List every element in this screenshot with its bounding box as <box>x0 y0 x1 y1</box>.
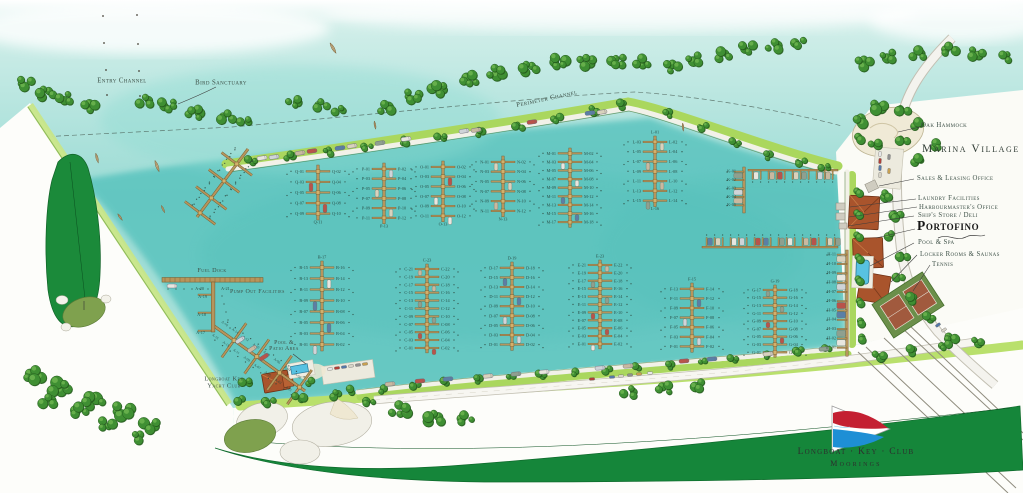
svg-text:D-12: D-12 <box>526 294 535 299</box>
svg-text:M-08: M-08 <box>584 177 594 182</box>
svg-text:M-05: M-05 <box>546 168 556 173</box>
svg-text:O-02: O-02 <box>457 164 466 169</box>
svg-text:C-18: C-18 <box>441 282 450 287</box>
svg-text:O-13: O-13 <box>439 221 448 226</box>
marina-village-label: Marina Village <box>922 144 1020 156</box>
svg-text:D-18: D-18 <box>526 265 535 270</box>
svg-text:P-08: P-08 <box>398 196 406 201</box>
pool-patio-line2: Patio Area <box>269 346 299 352</box>
svg-text:B-09: B-09 <box>299 298 308 303</box>
svg-text:F-07: F-07 <box>670 315 679 320</box>
svg-text:L-08: L-08 <box>669 169 677 174</box>
svg-text:C-05: C-05 <box>404 330 413 335</box>
svg-text:Q-10: Q-10 <box>332 211 341 216</box>
svg-text:D-09: D-09 <box>489 304 498 309</box>
svg-text:A-19: A-19 <box>198 294 207 299</box>
svg-text:D-13: D-13 <box>489 285 498 290</box>
svg-text:B-03: B-03 <box>299 331 308 336</box>
svg-text:N-12: N-12 <box>517 208 526 213</box>
laundry-facilities-label: Laundry Facilities <box>918 195 980 202</box>
club-logo-line1: Longboat · Key · Club <box>798 448 915 458</box>
svg-text:D-06: D-06 <box>526 323 536 328</box>
svg-text:E-05: E-05 <box>578 326 586 331</box>
svg-text:B-01: B-01 <box>299 342 308 347</box>
dock-M: M-01M-02M-03M-04M-05M-06M-07M-08M-09M-10… <box>546 148 594 227</box>
svg-text:N-04: N-04 <box>517 169 527 174</box>
svg-text:G-01: G-01 <box>752 350 761 355</box>
svg-text:G-10: G-10 <box>789 319 798 324</box>
svg-text:L-02: L-02 <box>669 139 677 144</box>
svg-text:A-21: A-21 <box>221 286 230 291</box>
svg-text:D-05: D-05 <box>489 323 498 328</box>
svg-text:Q-11: Q-11 <box>314 220 323 225</box>
svg-text:B-12: B-12 <box>336 287 345 292</box>
svg-text:E-01: E-01 <box>578 341 586 346</box>
svg-text:H-04: H-04 <box>827 317 837 322</box>
svg-text:A-18: A-18 <box>197 312 206 317</box>
svg-text:F-05: F-05 <box>670 325 678 330</box>
svg-text:K-03: K-03 <box>727 185 736 190</box>
svg-text:Q-09: Q-09 <box>295 211 304 216</box>
svg-text:C-01: C-01 <box>404 345 413 350</box>
svg-text:F-06: F-06 <box>706 325 715 330</box>
yacht-club-line2: Yacht Club <box>204 383 243 390</box>
svg-text:G-11: G-11 <box>752 311 761 316</box>
svg-text:E-07: E-07 <box>578 318 587 323</box>
svg-text:O-04: O-04 <box>457 174 467 179</box>
svg-text:D-14: D-14 <box>526 285 536 290</box>
svg-text:C-16: C-16 <box>441 290 450 295</box>
svg-text:D-01: D-01 <box>489 342 498 347</box>
svg-text:H-10: H-10 <box>827 261 836 266</box>
marina-site-plan: Q-01Q-02Q-03Q-04Q-05Q-06Q-07Q-08Q-09Q-10… <box>0 0 1023 493</box>
svg-text:O-12: O-12 <box>457 213 466 218</box>
svg-text:Q-05: Q-05 <box>295 190 304 195</box>
svg-text:L-09: L-09 <box>633 169 641 174</box>
svg-text:Q-08: Q-08 <box>332 201 341 206</box>
svg-text:M-09: M-09 <box>546 185 556 190</box>
svg-text:G-06: G-06 <box>789 334 799 339</box>
svg-text:F-15: F-15 <box>688 277 696 282</box>
svg-text:D-17: D-17 <box>489 265 499 270</box>
svg-text:Q-07: Q-07 <box>295 201 305 206</box>
svg-text:G-04: G-04 <box>789 342 799 347</box>
pool-patio-area-label: Pool & Patio Area <box>269 340 299 352</box>
svg-text:D-11: D-11 <box>489 294 498 299</box>
svg-text:D-07: D-07 <box>489 313 499 318</box>
svg-text:D-19: D-19 <box>508 256 517 261</box>
svg-text:O-10: O-10 <box>457 204 466 209</box>
svg-text:K-01: K-01 <box>727 169 736 174</box>
svg-text:N-02: N-02 <box>517 159 526 164</box>
svg-text:P-02: P-02 <box>398 166 406 171</box>
svg-text:G-15: G-15 <box>752 295 761 300</box>
svg-text:Q-03: Q-03 <box>295 179 304 184</box>
svg-text:L-16: L-16 <box>651 206 660 211</box>
svg-text:F-10: F-10 <box>706 306 714 311</box>
svg-text:A-17: A-17 <box>196 330 206 335</box>
svg-text:M-16: M-16 <box>584 211 594 216</box>
svg-text:F-03: F-03 <box>670 334 678 339</box>
bird-sanctuary-label: Bird Sanctuary <box>195 79 247 86</box>
svg-text:K-02: K-02 <box>727 177 736 182</box>
svg-text:N-01: N-01 <box>480 159 489 164</box>
svg-text:D-04: D-04 <box>526 333 536 338</box>
svg-text:N-11: N-11 <box>480 208 489 213</box>
svg-text:G-13: G-13 <box>752 303 761 308</box>
svg-text:G-09: G-09 <box>752 319 761 324</box>
svg-text:N-05: N-05 <box>480 179 489 184</box>
svg-text:B-17: B-17 <box>318 255 327 260</box>
svg-text:F-01: F-01 <box>670 344 678 349</box>
svg-text:P-10: P-10 <box>398 206 406 211</box>
svg-text:B-02: B-02 <box>336 342 345 347</box>
svg-text:M-04: M-04 <box>584 159 594 164</box>
svg-text:B-04: B-04 <box>336 331 345 336</box>
tennis-label: Tennis <box>932 261 953 268</box>
svg-text:E-09: E-09 <box>578 310 586 315</box>
svg-text:C-21: C-21 <box>404 266 413 271</box>
svg-text:N-10: N-10 <box>517 199 526 204</box>
svg-text:E-22: E-22 <box>614 262 622 267</box>
village-building-1 <box>848 195 880 230</box>
svg-text:F-13: F-13 <box>670 286 678 291</box>
svg-text:B-14: B-14 <box>336 276 345 281</box>
svg-text:L-13: L-13 <box>633 188 641 193</box>
svg-text:G-12: G-12 <box>789 311 798 316</box>
dock-L: L-01L-03L-02L-05L-04L-07L-06L-09L-08L-11… <box>633 130 679 212</box>
svg-text:E-10: E-10 <box>614 310 622 315</box>
svg-text:E-13: E-13 <box>578 294 586 299</box>
svg-text:H-06: H-06 <box>827 298 837 303</box>
svg-text:M-07: M-07 <box>546 177 556 182</box>
svg-text:M-11: M-11 <box>547 194 556 199</box>
svg-text:B-07: B-07 <box>299 309 308 314</box>
svg-text:L-04: L-04 <box>669 149 678 154</box>
svg-text:D-16: D-16 <box>526 275 536 280</box>
svg-text:Q-01: Q-01 <box>295 169 304 174</box>
svg-text:P-01: P-01 <box>362 166 370 171</box>
svg-text:L-06: L-06 <box>669 159 678 164</box>
portofino-label: Portofino <box>917 219 979 233</box>
laundry-building <box>836 203 845 210</box>
svg-text:C-23: C-23 <box>423 258 432 263</box>
oak-hammock-label: Oak Hammock <box>921 122 967 129</box>
svg-text:P-11: P-11 <box>362 215 370 220</box>
harbourmasters-office-label: Harbourmaster's Office <box>919 204 998 211</box>
svg-text:B-16: B-16 <box>336 265 345 270</box>
svg-text:O-03: O-03 <box>420 174 429 179</box>
ships-store-building <box>839 223 847 229</box>
svg-text:B-06: B-06 <box>336 320 345 325</box>
svg-text:P-09: P-09 <box>362 206 370 211</box>
svg-text:B-10: B-10 <box>336 298 345 303</box>
svg-text:D-15: D-15 <box>489 275 498 280</box>
svg-text:C-17: C-17 <box>404 282 413 287</box>
svg-text:N-09: N-09 <box>480 199 489 204</box>
svg-text:B-11: B-11 <box>300 287 308 292</box>
svg-text:M-18: M-18 <box>584 220 594 225</box>
svg-text:C-08: C-08 <box>441 322 450 327</box>
svg-text:F-09: F-09 <box>670 306 678 311</box>
svg-text:O-11: O-11 <box>420 213 429 218</box>
svg-text:O-06: O-06 <box>457 184 467 189</box>
svg-text:D-02: D-02 <box>526 342 535 347</box>
pool-spa-label: Pool & Spa <box>918 239 954 246</box>
svg-text:M-12: M-12 <box>584 194 594 199</box>
svg-text:H-08: H-08 <box>827 280 836 285</box>
locker-rooms-saunas-label: Locker Rooms & Saunas <box>920 251 1000 258</box>
svg-text:L-15: L-15 <box>633 198 641 203</box>
svg-text:P-13: P-13 <box>380 223 388 228</box>
svg-text:O-01: O-01 <box>420 164 429 169</box>
svg-text:E-03: E-03 <box>578 334 586 339</box>
svg-text:G-08: G-08 <box>789 326 798 331</box>
svg-text:C-11: C-11 <box>405 306 413 311</box>
svg-text:H-07: H-07 <box>827 289 837 294</box>
svg-text:P-12: P-12 <box>398 215 406 220</box>
svg-text:E-19: E-19 <box>578 270 586 275</box>
svg-text:N-06: N-06 <box>517 179 527 184</box>
svg-text:P-07: P-07 <box>362 196 371 201</box>
svg-text:L-03: L-03 <box>633 139 641 144</box>
svg-text:F-04: F-04 <box>706 334 715 339</box>
svg-text:E-04: E-04 <box>614 334 623 339</box>
svg-text:C-22: C-22 <box>441 266 450 271</box>
svg-text:C-06: C-06 <box>441 330 450 335</box>
svg-text:M-17: M-17 <box>546 220 556 225</box>
svg-text:E-06: E-06 <box>614 326 623 331</box>
svg-text:E-11: E-11 <box>578 302 586 307</box>
svg-text:F-12: F-12 <box>706 296 714 301</box>
svg-text:L-10: L-10 <box>669 179 677 184</box>
svg-text:A-20: A-20 <box>195 286 204 291</box>
svg-text:P-05: P-05 <box>362 186 370 191</box>
svg-text:F-02: F-02 <box>706 344 714 349</box>
svg-text:M-13: M-13 <box>546 202 556 207</box>
entry-channel-label: Entry Channel <box>97 77 146 84</box>
svg-text:E-16: E-16 <box>614 286 623 291</box>
svg-text:H-03: H-03 <box>827 326 836 331</box>
svg-text:O-05: O-05 <box>420 184 429 189</box>
svg-text:C-12: C-12 <box>441 306 450 311</box>
harbourmaster-building <box>836 213 845 220</box>
svg-text:N-07: N-07 <box>480 189 490 194</box>
svg-text:M-02: M-02 <box>584 151 594 156</box>
svg-text:P-06: P-06 <box>398 186 407 191</box>
svg-text:C-07: C-07 <box>404 322 413 327</box>
svg-text:F-08: F-08 <box>706 315 714 320</box>
svg-text:H-09: H-09 <box>827 270 836 275</box>
svg-text:O-07: O-07 <box>420 194 430 199</box>
svg-text:C-03: C-03 <box>404 338 413 343</box>
svg-text:M-06: M-06 <box>584 168 594 173</box>
svg-text:C-19: C-19 <box>404 274 413 279</box>
dock-D: D-19D-17D-18D-15D-16D-13D-14D-11D-12D-09… <box>489 256 536 351</box>
svg-text:C-04: C-04 <box>441 338 450 343</box>
svg-text:L-12: L-12 <box>669 188 677 193</box>
svg-text:M-01: M-01 <box>546 151 556 156</box>
svg-text:G-16: G-16 <box>789 295 799 300</box>
svg-text:Q-06: Q-06 <box>332 190 342 195</box>
svg-text:D-03: D-03 <box>489 333 498 338</box>
svg-text:B-08: B-08 <box>336 309 345 314</box>
svg-text:O-08: O-08 <box>457 194 466 199</box>
svg-text:C-13: C-13 <box>404 298 413 303</box>
svg-text:E-21: E-21 <box>578 262 586 267</box>
svg-text:E-08: E-08 <box>614 318 622 323</box>
svg-text:H-05: H-05 <box>827 307 836 312</box>
svg-text:E-12: E-12 <box>614 302 622 307</box>
svg-text:C-15: C-15 <box>404 290 413 295</box>
svg-text:N-03: N-03 <box>480 169 489 174</box>
svg-text:Q-04: Q-04 <box>332 179 342 184</box>
sales-leasing-office-label: Sales & Leasing Office <box>917 175 993 182</box>
pump-out-facilities-label: Pump Out Facilities <box>230 289 285 295</box>
svg-text:H-02: H-02 <box>827 335 836 340</box>
svg-text:N-13: N-13 <box>499 216 508 221</box>
fuel-dock-label: Fuel Dock <box>197 268 226 274</box>
svg-text:M-03: M-03 <box>546 159 556 164</box>
svg-text:M-15: M-15 <box>546 211 556 216</box>
svg-text:M-10: M-10 <box>584 185 594 190</box>
svg-text:E-02: E-02 <box>614 341 622 346</box>
svg-text:C-14: C-14 <box>441 298 450 303</box>
svg-text:D-08: D-08 <box>526 313 535 318</box>
svg-text:N-08: N-08 <box>517 189 526 194</box>
svg-text:E-17: E-17 <box>578 278 587 283</box>
svg-text:L-05: L-05 <box>633 149 641 154</box>
svg-text:H-11: H-11 <box>827 252 836 257</box>
svg-text:C-02: C-02 <box>441 345 450 350</box>
svg-text:L-01: L-01 <box>651 130 659 135</box>
svg-text:M-14: M-14 <box>584 202 594 207</box>
svg-text:G-14: G-14 <box>789 303 799 308</box>
svg-text:G-17: G-17 <box>752 287 762 292</box>
svg-text:C-20: C-20 <box>441 274 450 279</box>
svg-text:L-11: L-11 <box>633 179 641 184</box>
svg-text:C-10: C-10 <box>441 314 450 319</box>
svg-text:O-09: O-09 <box>420 204 429 209</box>
svg-text:B-05: B-05 <box>299 320 308 325</box>
svg-text:B-15: B-15 <box>299 265 308 270</box>
svg-text:L-07: L-07 <box>633 159 642 164</box>
yacht-club-label: Longboat Key Yacht Club <box>204 376 243 389</box>
svg-text:Q-02: Q-02 <box>332 169 341 174</box>
svg-text:G-05: G-05 <box>752 334 761 339</box>
svg-text:B-13: B-13 <box>299 276 308 281</box>
svg-text:G-03: G-03 <box>752 342 761 347</box>
svg-text:P-04: P-04 <box>398 176 407 181</box>
svg-text:F-14: F-14 <box>706 286 715 291</box>
svg-text:C-09: C-09 <box>404 314 413 319</box>
svg-text:K-05: K-05 <box>727 202 736 207</box>
svg-text:F-11: F-11 <box>670 296 678 301</box>
svg-text:G-18: G-18 <box>789 287 798 292</box>
svg-text:E-18: E-18 <box>614 278 622 283</box>
svg-text:G-07: G-07 <box>752 326 762 331</box>
svg-text:E-15: E-15 <box>578 286 586 291</box>
svg-text:E-20: E-20 <box>614 270 622 275</box>
svg-text:L-14: L-14 <box>669 198 678 203</box>
site-plan-canvas: Q-01Q-02Q-03Q-04Q-05Q-06Q-07Q-08Q-09Q-10… <box>0 0 1023 493</box>
svg-text:D-10: D-10 <box>526 304 535 309</box>
parking-lot-north <box>872 147 903 189</box>
svg-text:E-14: E-14 <box>614 294 623 299</box>
svg-text:G-19: G-19 <box>771 279 780 284</box>
club-logo-line2: Moorings <box>830 460 881 468</box>
svg-text:E-23: E-23 <box>596 254 604 259</box>
svg-text:P-03: P-03 <box>362 176 370 181</box>
dock-G: G-19G-17G-18G-15G-16G-13G-14G-11G-12G-09… <box>752 279 799 359</box>
